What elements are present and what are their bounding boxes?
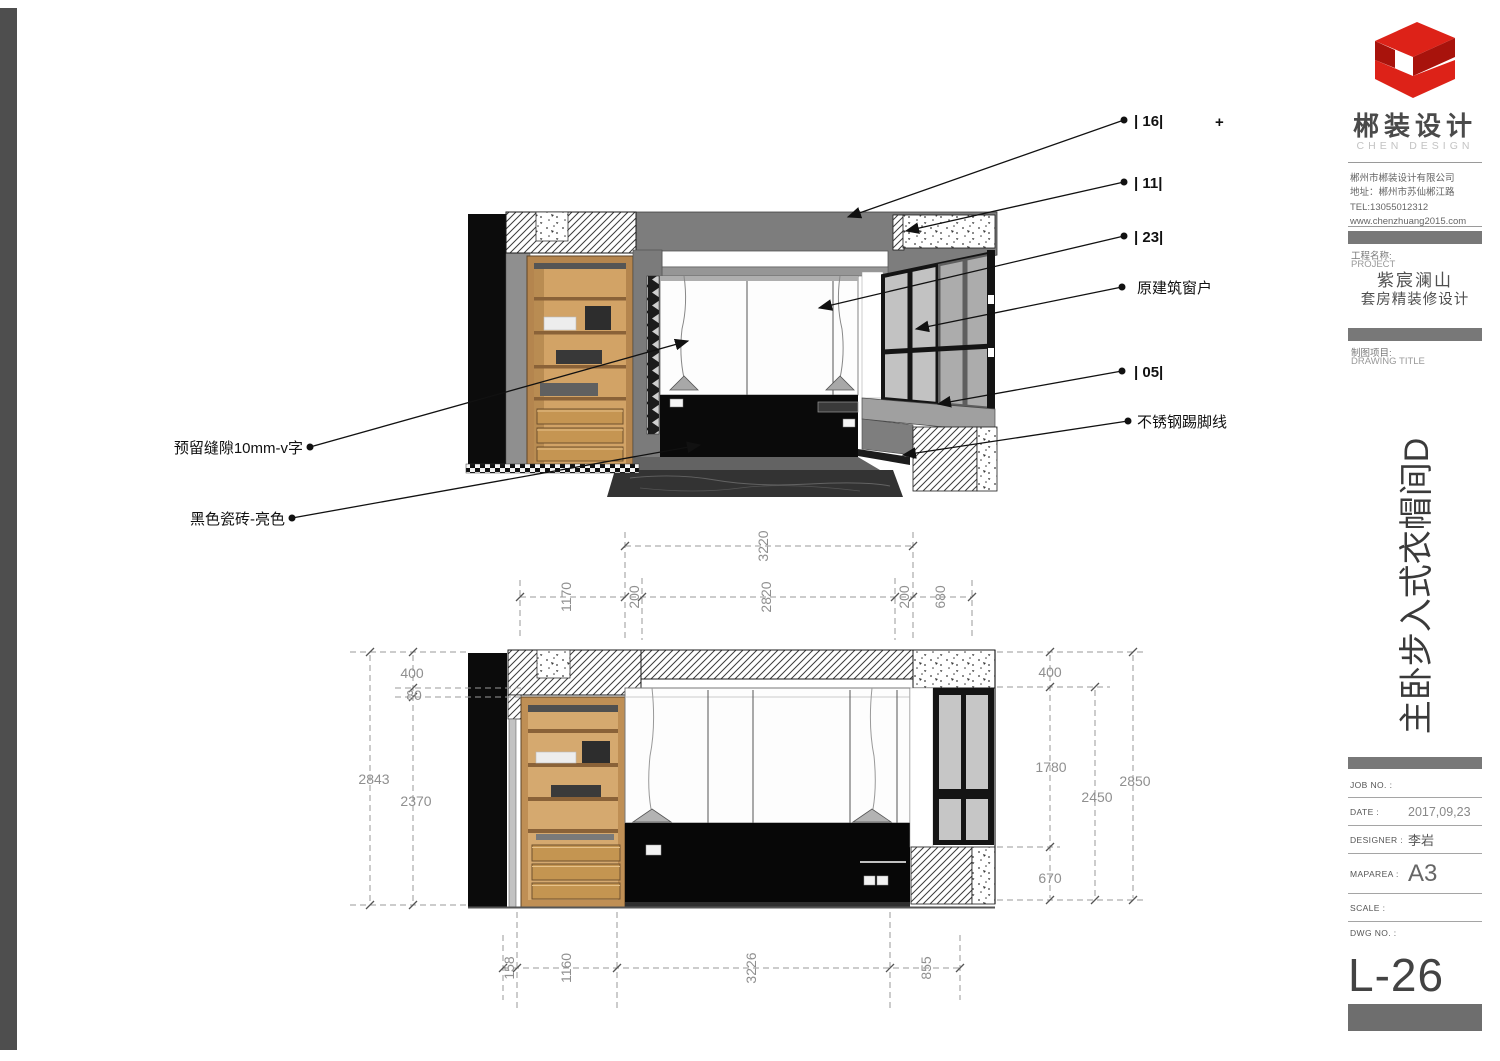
outlet [646,845,661,855]
drawing-title-label-en: DRAWING TITLE [1351,356,1425,367]
project-name-2: 套房精装修设计 [1348,288,1482,309]
brand-name: 郴装设计 [1348,106,1482,143]
callout-16: | 16| [1134,113,1163,130]
field-label: DATE : [1348,807,1379,817]
outlet [864,876,875,885]
books [556,350,602,364]
svg-text:2820: 2820 [758,581,774,612]
svg-text:2370: 2370 [400,793,431,809]
section-bar [1348,757,1482,769]
wardrobe-doors [660,276,858,395]
field-row-scale: SCALE : [1348,894,1482,922]
floor-shadow [633,457,880,470]
drawers [537,409,623,461]
company-address: 地址：郴州市苏仙郴江路 [1350,186,1482,200]
callout-11: | 11| [1134,175,1162,192]
field-label: DWG NO. : [1348,928,1397,938]
sundries [536,834,614,840]
callout-05: | 05| [1134,364,1163,381]
svg-text:400: 400 [400,665,424,681]
title-block-panel: 郴装设计 CHEN DESIGN 郴州市郴装设计有限公司 地址：郴州市苏仙郴江路… [1348,0,1482,1061]
field-label: SCALE : [1348,903,1385,913]
field-value: 2017,09,23 [1408,805,1471,819]
pullout-rack [647,276,659,434]
beam-hatch-left [506,212,636,253]
callout-window: 原建筑窗户 [1137,279,1212,297]
folded-clothes [536,752,576,763]
window-perspective [883,250,995,412]
black-cabinet [660,395,858,457]
company-info: 郴州市郴装设计有限公司 地址：郴州市苏仙郴江路 TEL:13055012312 … [1350,172,1482,229]
wall-return [506,253,530,467]
divider [1348,162,1482,163]
callout-black-tile: 黑色瓷砖-亮色 [190,511,285,528]
field-label: MAPAREA : [1348,869,1399,879]
wall-hatch-top-right [893,215,995,250]
divider [1348,226,1482,227]
cove-soffit [662,267,888,276]
field-row-dwg-no: DWG NO. : [1348,922,1482,944]
callout-23: | 23| [1134,229,1163,246]
wardrobe-elevation [521,697,625,907]
bottom-bar [1348,1004,1482,1031]
sheet-number: L-26 [1348,948,1482,1002]
wardrobe-perspective [527,256,633,471]
fields-table: JOB NO. : DATE : 2017,09,23 DESIGNER : 李… [1348,773,1482,944]
svg-text:1780: 1780 [1035,759,1066,775]
svg-text:158: 158 [501,956,517,980]
svg-text:80: 80 [406,687,422,703]
drawing-area: | 16| + | 11| | 23| 原建筑窗户 | 05| 不锈钢踢脚线 预… [0,0,1340,1061]
svg-text:200: 200 [896,585,912,609]
field-label: JOB NO. : [1348,780,1392,790]
plus-mark: + [1215,114,1224,131]
perspective-view [466,212,997,497]
side-shelf [818,402,858,412]
folded-clothes [544,317,576,330]
svg-text:200: 200 [626,585,642,609]
svg-text:1160: 1160 [558,953,574,983]
field-row-designer: DESIGNER : 李岩 [1348,826,1482,854]
svg-text:2843: 2843 [358,771,389,787]
window-jamb [862,272,883,398]
cove-light [662,251,888,267]
svg-text:2850: 2850 [1119,773,1150,789]
section-bar [1348,328,1482,341]
black-cabinet-elev [625,823,910,907]
storage-box [585,306,611,330]
section-bar [1348,231,1482,244]
field-value: A3 [1408,860,1437,888]
wall-hatch-below-window [911,847,995,904]
window-jamb-elev [910,688,933,847]
black-tile-column [468,214,506,468]
metal-trim [509,719,516,907]
drawers [532,845,620,899]
brand-subtitle: CHEN DESIGN [1348,140,1482,152]
field-value: 李岩 [1408,830,1434,849]
company-name: 郴州市郴装设计有限公司 [1350,172,1482,186]
svg-text:400: 400 [1038,664,1062,680]
callout-gap: 预留缝隙10mm-v字 [174,440,303,457]
svg-text:2450: 2450 [1081,789,1112,805]
svg-text:855: 855 [918,956,934,980]
callout-skirting: 不锈钢踢脚线 [1137,414,1227,431]
folded-clothes-2 [540,383,598,396]
black-tile-column-elev [468,653,507,907]
field-row-job-no: JOB NO. : [1348,773,1482,798]
svg-text:670: 670 [1038,870,1062,886]
field-row-date: DATE : 2017,09,23 [1348,798,1482,826]
outlet [670,399,683,407]
window-elevation [933,688,994,845]
company-logo [1365,12,1465,104]
field-label: DESIGNER : [1348,835,1403,845]
books [551,785,601,797]
svg-text:680: 680 [932,585,948,609]
drawing-title-vertical: 主卧步入式衣帽间D [1396,436,1438,736]
storage-box [582,741,610,763]
outlet [877,876,888,885]
drawing-sheet: | 16| + | 11| | 23| 原建筑窗户 | 05| 不锈钢踢脚线 预… [0,0,1500,1061]
elevation-view [468,650,995,908]
field-row-maparea: MAPAREA : A3 [1348,854,1482,894]
wardrobe-doors-elev [625,688,910,823]
marble-floor [607,470,903,497]
svg-text:3226: 3226 [743,952,759,983]
company-tel: TEL:13055012312 [1350,201,1482,215]
svg-text:1170: 1170 [558,582,574,612]
svg-text:3220: 3220 [755,530,771,561]
outlet [843,419,855,427]
wall-hatch-bottom-right [913,427,997,491]
